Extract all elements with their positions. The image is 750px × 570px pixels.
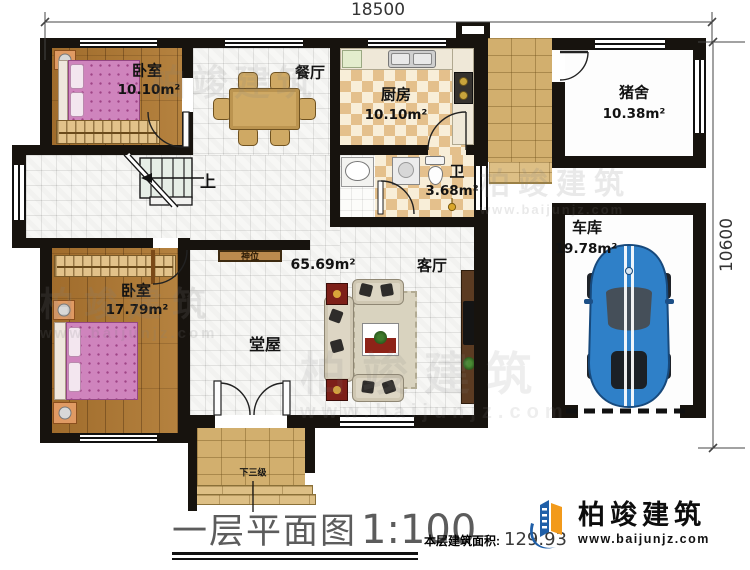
pigpen-floor <box>565 50 693 156</box>
window <box>368 38 446 48</box>
pillow <box>68 327 81 357</box>
shrine-label: 神位 <box>241 250 259 263</box>
title-rule <box>172 558 418 560</box>
corridor-floor <box>26 155 190 238</box>
kitchen-label: 厨房 <box>381 84 411 105</box>
bedroom2-label: 卧室 <box>121 280 151 301</box>
sofa-cushion <box>380 283 394 297</box>
window <box>80 38 157 48</box>
window <box>693 60 706 133</box>
pillow <box>70 92 84 117</box>
bed-headboard <box>58 60 68 122</box>
steps-down-label: 下三级 <box>239 466 266 479</box>
dim-top-label: 18500 <box>351 0 405 20</box>
wardrobe <box>56 120 160 144</box>
end-table <box>326 379 348 401</box>
company-logo: 柏竣建筑 www.baijunjz.com <box>528 496 710 552</box>
pillow <box>70 64 84 89</box>
end-table <box>326 283 348 305</box>
living-label: 客厅 <box>417 255 447 276</box>
bathroom-label: 卫 <box>449 161 464 182</box>
nightstand <box>53 402 77 424</box>
sink-basin <box>391 53 410 65</box>
car <box>584 243 674 409</box>
title-text: 一层平面图 <box>172 503 357 554</box>
hall-label: 堂屋 <box>249 331 281 355</box>
vanity-sink <box>345 161 370 181</box>
garage-area: 19.78m² <box>555 241 618 257</box>
pigpen-area: 10.38m² <box>603 106 666 122</box>
bedroom2-area: 17.79m² <box>106 302 169 318</box>
bathroom-area: 3.68m² <box>425 183 478 199</box>
floor-plan: 18500 10600 卧室 10.10m² 餐厅 厨房 10.10m² 猪舍 … <box>0 0 750 570</box>
fridge <box>342 50 362 68</box>
nightstand <box>53 300 75 320</box>
stove-burner <box>459 77 468 86</box>
bed-headboard <box>54 322 66 400</box>
stairs-up-label: 上 <box>200 168 216 192</box>
side-passage-floor <box>487 38 552 162</box>
dining-label: 餐厅 <box>295 62 325 83</box>
logo-icon <box>528 496 572 552</box>
garage-label: 车库 <box>572 217 602 238</box>
dining-table <box>229 88 300 130</box>
window <box>12 165 26 220</box>
kitchen-area: 10.10m² <box>365 107 428 123</box>
sofa-bottom <box>352 374 404 402</box>
window <box>225 38 303 48</box>
sofa-cushion <box>361 380 375 394</box>
hall-area: 65.69m² <box>290 257 355 273</box>
toilet-tank <box>425 156 445 165</box>
brand-name: 柏竣建筑 <box>578 502 710 529</box>
sink-basin <box>413 53 432 65</box>
title-rule <box>172 552 418 555</box>
window <box>340 415 414 428</box>
stove-burner <box>459 91 468 100</box>
table-plant <box>374 331 387 344</box>
pigpen-label: 猪舍 <box>619 82 649 103</box>
window <box>595 38 665 50</box>
bedroom1-label: 卧室 <box>132 60 162 81</box>
dim-right-label: 10600 <box>717 218 737 272</box>
window <box>80 433 157 443</box>
bedroom1-area: 10.10m² <box>118 82 181 98</box>
hall-floor <box>190 155 340 415</box>
wardrobe <box>54 255 176 277</box>
side-passage-step <box>489 162 552 184</box>
area-note-label: 本层建筑面积: <box>424 532 500 549</box>
pillow <box>68 362 81 392</box>
washer-drum <box>398 162 414 178</box>
brand-url: www.baijunjz.com <box>578 532 710 546</box>
